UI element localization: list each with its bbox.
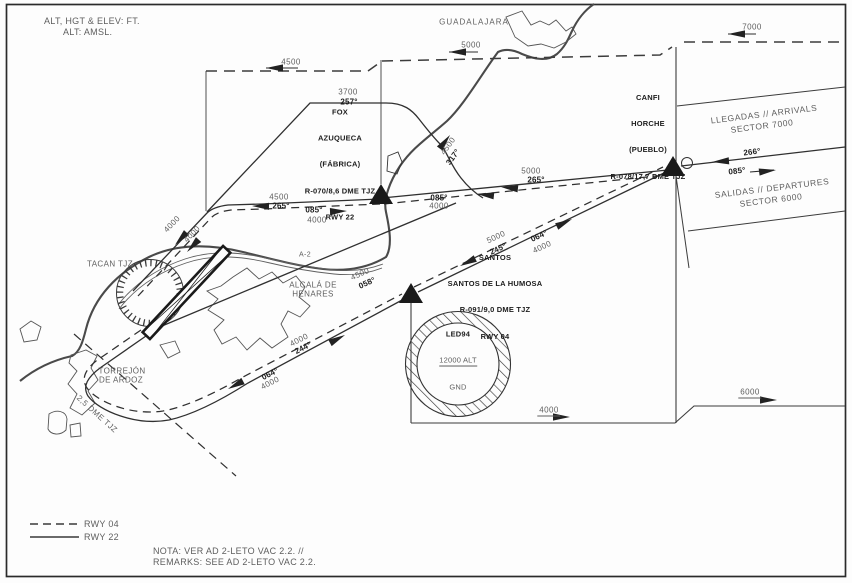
- restricted-ceiling: 12000 ALT: [439, 357, 477, 367]
- fox-radial: R-070/8,6 DME TJZ: [305, 187, 376, 196]
- chart-linework: [0, 0, 852, 583]
- compass-rose-icon: [117, 260, 184, 327]
- lake-outline-2: [48, 411, 67, 434]
- alcala-outline: [207, 268, 310, 350]
- route-266-canfi: [681, 147, 845, 166]
- route-dashed-runway-loop-santos: [84, 294, 402, 412]
- restricted-area-label: LED94 12000 ALT GND: [439, 313, 477, 402]
- fox-runway: RWY 22: [305, 214, 376, 223]
- sector-line-departures: [688, 211, 845, 231]
- sector-line-arrivals: [677, 87, 845, 106]
- canfi-radial: R-078/17,7 DME TJZ: [611, 173, 686, 182]
- chart-border: [7, 5, 846, 577]
- fabrica-building-icon: [387, 152, 402, 174]
- boundary-dashed-topleft: [206, 61, 382, 71]
- boundary-dashed-top: [382, 47, 672, 61]
- waypoint-block-fox: FOX AZUQUECA (FÁBRICA) R-070/8,6 DME TJZ…: [305, 91, 376, 232]
- fox-name: FOX: [305, 108, 376, 117]
- waypoint-santos-icon: [399, 283, 423, 303]
- torrejon-outline: [68, 350, 98, 415]
- canfi-place: HORCHE: [611, 120, 686, 129]
- canfi-name: CANFI: [611, 93, 686, 102]
- waypoint-block-canfi: CANFI HORCHE (PUEBLO) R-078/17,7 DME TJZ: [611, 76, 686, 190]
- fox-place: AZUQUECA: [305, 135, 376, 144]
- restricted-floor: GND: [439, 384, 477, 393]
- santos-name: SANTOS: [448, 253, 543, 262]
- village-outline: [160, 341, 180, 358]
- santos-place: SANTOS DE LA HUMOSA: [448, 280, 543, 289]
- legend-samples: [30, 524, 79, 537]
- lake-outline-3: [70, 423, 81, 437]
- vfr-chart: ALT, HGT & ELEV: FT. ALT: AMSL. GUADALAJ…: [0, 0, 852, 583]
- restricted-id: LED94: [439, 330, 477, 339]
- boundary-layer: [206, 42, 845, 423]
- lake-outline-1: [20, 321, 41, 342]
- fox-detail: (FÁBRICA): [305, 161, 376, 170]
- route-058: [150, 203, 456, 331]
- canfi-detail: (PUEBLO): [611, 146, 686, 155]
- guadalajara-outline: [506, 11, 576, 48]
